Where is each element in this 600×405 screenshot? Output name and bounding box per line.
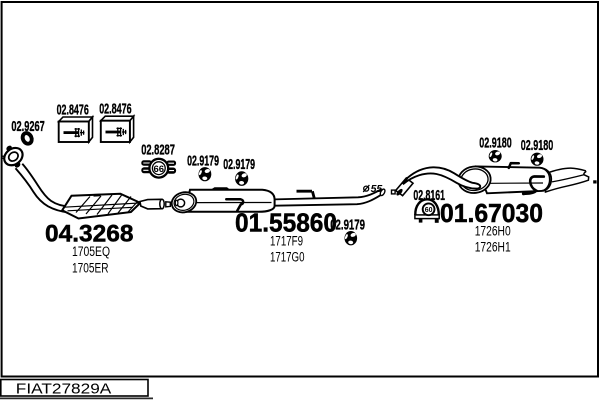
svg-text:02.9180: 02.9180	[479, 136, 512, 152]
svg-text:1705ER: 1705ER	[72, 260, 109, 276]
svg-text:02.9179: 02.9179	[187, 154, 219, 170]
svg-text:55: 55	[371, 183, 383, 195]
svg-text:02.8287: 02.8287	[141, 142, 175, 158]
svg-text:1717F9: 1717F9	[270, 233, 303, 249]
svg-text:02.8476: 02.8476	[57, 102, 89, 118]
svg-text:02.9179: 02.9179	[330, 218, 365, 234]
svg-text:1726H0: 1726H0	[475, 223, 511, 239]
svg-text:FIAT27829A: FIAT27829A	[16, 381, 112, 398]
svg-text:02.9180: 02.9180	[521, 138, 554, 154]
svg-text:02.8476: 02.8476	[99, 102, 131, 118]
svg-text:02.9179: 02.9179	[223, 157, 255, 173]
svg-text:02.9267: 02.9267	[11, 119, 44, 135]
svg-text:1717G0: 1717G0	[270, 250, 305, 266]
svg-text:1726H1: 1726H1	[475, 239, 511, 255]
svg-text:66: 66	[154, 164, 165, 175]
svg-text:1705EQ: 1705EQ	[72, 244, 110, 260]
svg-text:60: 60	[425, 207, 433, 214]
